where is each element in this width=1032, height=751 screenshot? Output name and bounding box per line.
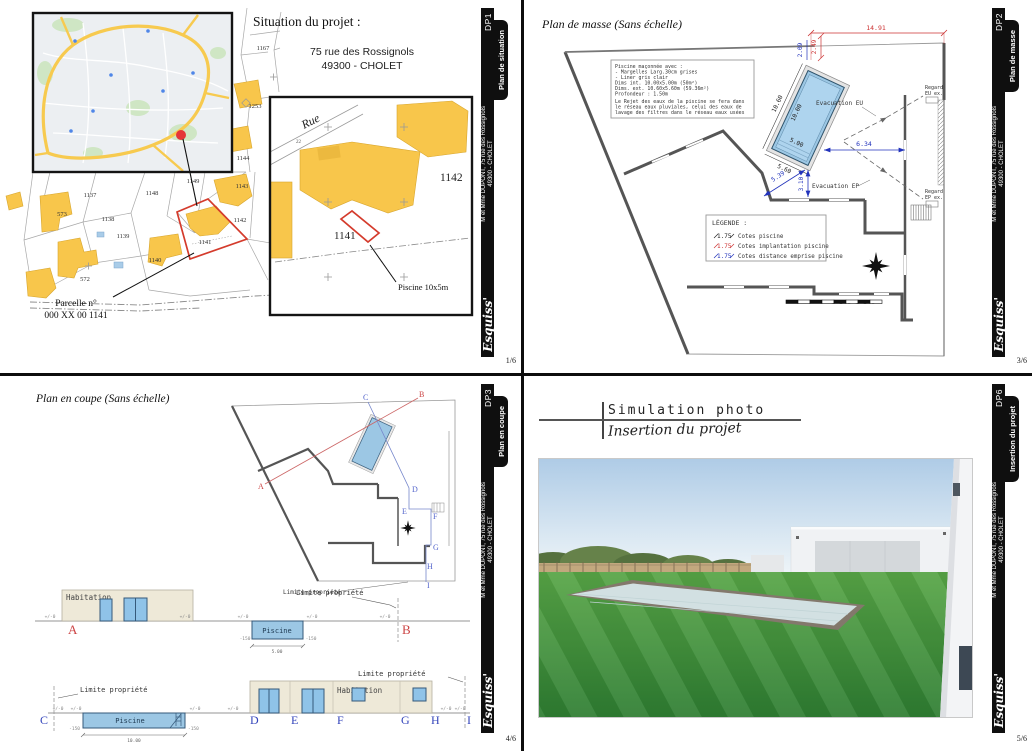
svg-text:+/-0: +/-0	[45, 614, 56, 620]
section-line-ab	[265, 398, 418, 484]
title-block-bar-dp3: DP3 M et Mme DUPONT, 75 rue des Rossigno…	[481, 384, 494, 733]
pool-house-building	[791, 527, 953, 574]
evacuation-eu-label: Evacuation EU	[816, 100, 863, 107]
svg-text:Profondeur : 1.50m: Profondeur : 1.50m	[615, 92, 668, 98]
svg-text:Cotes implantation piscine: Cotes implantation piscine	[738, 244, 829, 250]
garage-door	[815, 541, 920, 574]
sheet-title: Situation du projet :	[253, 14, 361, 29]
svg-text:1253: 1253	[249, 103, 262, 110]
esquiss-logo: Esquiss'	[992, 297, 1006, 352]
svg-text:EP ex.: EP ex.	[925, 195, 943, 201]
esquiss-logo: Esquiss'	[992, 673, 1006, 728]
sheet-title: Simulation photo	[608, 403, 765, 418]
svg-text:1167: 1167	[257, 45, 271, 52]
sheet-dp6-simulation-photo: Simulation photo Insertion du projet	[524, 376, 1032, 751]
svg-text:+/-0: +/-0	[455, 706, 466, 712]
svg-text:C: C	[363, 393, 368, 402]
parcel-zoom-inset: Rue 22 1142 1141 Piscine 10x5m	[270, 97, 472, 315]
mini-staircase	[432, 503, 444, 512]
dim-to-wall-right: 6.34	[856, 140, 872, 148]
svg-text:H: H	[431, 713, 440, 727]
svg-text:1138: 1138	[102, 216, 115, 223]
dim-to-wall-down: 3.10	[798, 176, 805, 191]
page-number-dp1: 1/6	[506, 356, 516, 365]
mini-site-plan: A B C D E F G H I Limite propriété	[232, 390, 455, 596]
mini-plan-letters: A B C D E F G H I	[258, 390, 439, 590]
house-walls	[624, 95, 913, 320]
svg-text:+/-0: +/-0	[71, 706, 82, 712]
page-number-dp6: 5/6	[1017, 734, 1027, 743]
page-number-dp3: 4/6	[506, 734, 516, 743]
svg-text:G: G	[433, 543, 439, 552]
photo-simulation	[538, 458, 973, 718]
svg-text:Cotes piscine: Cotes piscine	[738, 234, 784, 240]
title-block-bar-dp2: DP2 M et Mme DUPONT, 75 rue des Rossigno…	[992, 8, 1005, 357]
dim-top-width: 14.91	[866, 24, 886, 32]
regard-ep: Regard EP ex.	[925, 189, 943, 207]
svg-text:E: E	[291, 713, 298, 727]
inset-selected-parcel-number: 1141	[334, 230, 356, 242]
sheet-code: DP2	[994, 13, 1004, 31]
garden-wall-small	[751, 555, 784, 574]
letter-b: B	[402, 622, 411, 637]
svg-text:Cotes distance emprise piscine: Cotes distance emprise piscine	[738, 254, 843, 260]
svg-text:+/-0: +/-0	[238, 614, 249, 620]
client-address: M et Mme DUPONT, 75 rue des Rossignols 4…	[992, 482, 1005, 598]
svg-text:573: 573	[57, 211, 67, 218]
svg-text:-150: -150	[306, 636, 317, 642]
svg-text:+/-0: +/-0	[380, 614, 391, 620]
limite-label-ab: Limite propriété	[296, 589, 363, 597]
compass-rose	[862, 252, 890, 280]
svg-text:A: A	[258, 482, 264, 491]
inset-house-number: 22	[296, 140, 302, 145]
svg-text:1137: 1137	[84, 192, 98, 199]
page-divider-horizontal	[0, 373, 1032, 376]
boundary-wall-top	[565, 46, 814, 52]
sheet-title: Plan en coupe (Sans échelle)	[35, 393, 170, 405]
sheet-code: DP1	[483, 13, 493, 31]
dim-offset-red: 2.49	[811, 39, 818, 54]
sheet-dp3-plan-en-coupe: Plan en coupe (Sans échelle)	[0, 376, 521, 751]
svg-text:-150: -150	[240, 636, 251, 642]
dim-pool-width-ab: 5.00	[272, 649, 283, 655]
svg-text:G: G	[401, 713, 410, 727]
sheet-dp1-plan-de-situation: 1167 1253 1144 1143 1149 1148 1137 573 1…	[0, 0, 521, 373]
pool-note-box: Piscine maçonnée avec : - Margelles Larg…	[611, 60, 754, 118]
project-address-line1: 75 rue des Rossignols	[310, 46, 414, 58]
svg-text:1139: 1139	[117, 233, 130, 240]
inset-parcel-right-number: 1142	[440, 172, 463, 184]
sheet-subtitle: Insertion du projet	[608, 420, 742, 439]
evac-ep-leader	[858, 180, 870, 186]
limite-label-ci-left: Limite propriété	[80, 686, 147, 694]
client-address: M et Mme DUPONT, 75 rue des Rossignols 4…	[481, 106, 494, 222]
svg-text:1.75: 1.75	[717, 243, 732, 250]
plan-en-coupe-drawing: Plan en coupe (Sans échelle)	[0, 376, 521, 751]
scale-bar	[786, 300, 882, 304]
svg-text:EU ex.: EU ex.	[925, 91, 943, 97]
svg-text:1140: 1140	[149, 257, 162, 264]
section-ci: Limite propriété Piscine +/-0 +/-0 +/-0 …	[40, 670, 471, 744]
svg-text:+/-0: +/-0	[441, 706, 452, 712]
svg-text:B: B	[419, 390, 424, 399]
sheet-code: DP3	[483, 389, 493, 407]
svg-text:D: D	[412, 485, 418, 494]
esquiss-logo: Esquiss'	[481, 673, 495, 728]
svg-text:C: C	[40, 713, 48, 727]
parcel-note-line1: Parcelle n°	[55, 298, 97, 309]
dim-offset-blue: 2.09	[797, 42, 804, 57]
svg-text:1144: 1144	[237, 155, 251, 162]
red-dimensions: 14.91 2.49	[808, 24, 947, 61]
svg-text:1.75: 1.75	[717, 253, 732, 260]
svg-text:+/-0: +/-0	[180, 614, 191, 620]
svg-text:lavage des filtres dans le rés: lavage des filtres dans le réseau eaux u…	[615, 109, 745, 116]
limite-label-ci-right: Limite propriété	[358, 670, 425, 678]
client-address: M et Mme DUPONT, 75 rue des Rossignols 4…	[992, 106, 1005, 222]
project-address-line2: 49300 - CHOLET	[321, 60, 403, 72]
svg-text:-150: -150	[69, 726, 80, 732]
dim-pool-length-ci: 10.00	[127, 738, 141, 744]
svg-text:D: D	[250, 713, 259, 727]
svg-text:1142: 1142	[234, 217, 247, 224]
svg-text:1143: 1143	[236, 183, 249, 190]
svg-text:1.75: 1.75	[717, 233, 732, 240]
title-block-bar-dp1: DP1 M et Mme DUPONT, 75 rue des Rossigno…	[481, 8, 494, 357]
svg-text:H: H	[427, 562, 433, 571]
dim-pool-length-ext: 10.60	[771, 94, 785, 114]
svg-text:F: F	[337, 713, 344, 727]
house-window	[959, 646, 973, 690]
svg-text:I: I	[467, 713, 471, 727]
wall-fixture	[953, 483, 960, 496]
svg-text:+/-0: +/-0	[307, 614, 318, 620]
mini-compass	[400, 520, 415, 535]
svg-text:+/-0: +/-0	[190, 706, 201, 712]
svg-text:F: F	[433, 512, 438, 521]
sheet-tab-dp1: Plan de situation	[494, 20, 508, 100]
inset-building-left	[270, 182, 292, 258]
location-pin	[176, 130, 186, 140]
sheet-dp2-plan-de-masse: Plan de masse (Sans échelle)	[524, 0, 1032, 373]
svg-text:-150: -150	[188, 726, 199, 732]
svg-text:1141: 1141	[199, 239, 212, 246]
section-ab: Habitation Piscine +/-0 +/-0 +/-0 +/-0 +…	[35, 589, 470, 655]
header-tick-line	[602, 402, 604, 439]
title-block-bar-dp6: DP6 M et Mme DUPONT, 75 rue des Rossigno…	[992, 384, 1005, 733]
inset-pool-label: Piscine 10x5m	[398, 282, 449, 292]
piscine-label-ci: Piscine	[115, 717, 145, 725]
wall-hatch-column	[938, 100, 944, 185]
plan-de-masse-drawing: Plan de masse (Sans échelle)	[524, 0, 1032, 373]
svg-text:I: I	[427, 581, 430, 590]
svg-text:E: E	[402, 507, 407, 516]
city-map-inset	[33, 13, 232, 172]
svg-text:1149: 1149	[187, 178, 200, 185]
evacuation-ep-label: Evacuation EP	[812, 183, 859, 190]
sheet-title: Plan de masse (Sans échelle)	[541, 17, 682, 31]
legend-title: LÉGENDE :	[712, 218, 747, 227]
sheet-code: DP6	[994, 389, 1004, 407]
svg-text:+/-0: +/-0	[53, 706, 64, 712]
header-rule	[539, 419, 801, 421]
sheet-tab-dp3: Plan en coupe	[494, 396, 508, 467]
parcel-note-line2: 000 XX 00 1141	[44, 311, 107, 321]
situation-drawing: 1167 1253 1144 1143 1149 1148 1137 573 1…	[0, 0, 521, 373]
sheet-tab-dp6: Insertion du projet	[1005, 396, 1019, 482]
evac-eu-leader	[862, 107, 876, 116]
legend-box: LÉGENDE : 1.75 Cotes piscine 1.75 Cotes …	[706, 215, 843, 261]
letter-a: A	[68, 622, 78, 637]
svg-text:572: 572	[80, 276, 90, 283]
pool: 10.00 10.60 5.00 5.60	[749, 60, 850, 183]
sheet-tab-dp2: Plan de masse	[1005, 20, 1019, 92]
client-address: M et Mme DUPONT, 75 rue des Rossignols 4…	[481, 482, 494, 598]
esquiss-logo: Esquiss'	[481, 297, 495, 352]
svg-text:+/-0: +/-0	[228, 706, 239, 712]
svg-text:1148: 1148	[146, 190, 159, 197]
piscine-label: Piscine	[262, 627, 292, 635]
page-number-dp2: 3/6	[1017, 356, 1027, 365]
